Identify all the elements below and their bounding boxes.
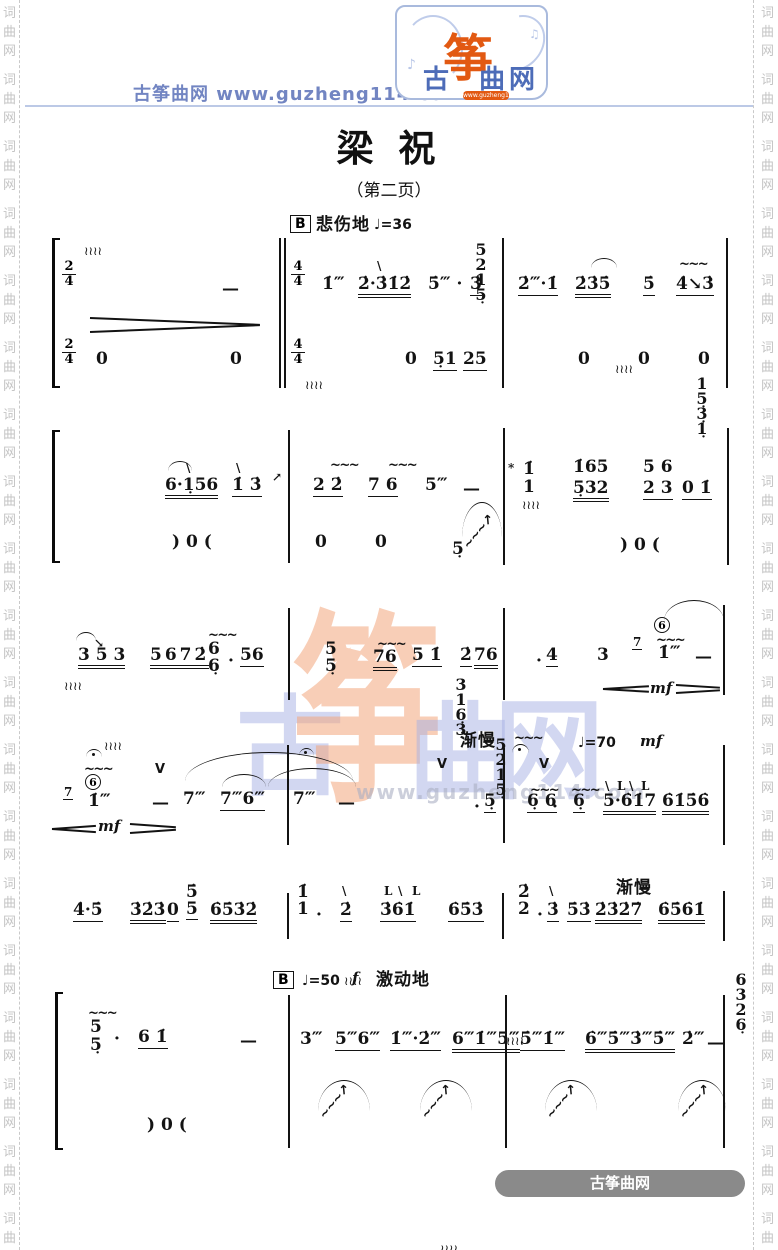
- wavy-ornament: ~~~: [330, 458, 358, 473]
- note-token: ·: [537, 906, 543, 925]
- rehearsal-mark: B: [273, 971, 294, 989]
- note-token: ) 0 (: [172, 533, 212, 552]
- edge-watermark-char: 曲: [3, 892, 16, 911]
- barline: [288, 995, 290, 1148]
- rehearsal-mark: B: [290, 215, 311, 233]
- note-token: 6̇5̇6̇1̇: [658, 901, 705, 924]
- note-token: 5̇3̇: [567, 901, 591, 922]
- note-token: ·: [114, 1030, 120, 1049]
- edge-watermark-char: 网: [3, 978, 16, 997]
- edge-watermark-char: 词: [3, 1141, 16, 1160]
- edge-watermark-char: 词: [3, 1074, 16, 1093]
- note-token: 1̇ 1: [297, 884, 309, 918]
- time-signature: 44: [289, 339, 307, 366]
- note-token: 2̇‴: [682, 1030, 705, 1049]
- edge-watermark-char: 曲: [3, 691, 16, 710]
- time-signature: 24: [60, 339, 78, 366]
- edge-watermark-char: 曲: [761, 1160, 774, 1179]
- note-token: 6 6̣: [208, 641, 220, 675]
- note-token: 6·1̣56: [165, 476, 218, 499]
- dynamic-marking: mf: [640, 733, 662, 749]
- note-token: 5̇‴1̇‴: [520, 1030, 565, 1051]
- edge-watermark-char: 网: [3, 40, 16, 59]
- note-token: 5 5̣: [325, 641, 337, 675]
- ritardando-label: 渐慢: [616, 879, 652, 897]
- barline: [287, 893, 289, 939]
- hairpin-line: [90, 324, 260, 332]
- edge-watermark-char: 曲: [3, 959, 16, 978]
- edge-watermark-char: 词: [3, 2, 16, 21]
- note-token: 5‴6‴: [335, 1030, 380, 1051]
- barline: [284, 238, 286, 388]
- edge-watermark-char: 网: [3, 1112, 16, 1131]
- edge-watermark-char: 网: [761, 40, 774, 59]
- dynamic-marking: mf: [650, 680, 672, 696]
- note-token: 6̇5̇3̇2̇: [210, 901, 257, 924]
- edge-watermark-char: 曲: [3, 1227, 16, 1246]
- edge-watermark-char: 词: [3, 940, 16, 959]
- note-token: 6̇‴5̇‴3̇‴5̇‴: [585, 1030, 675, 1053]
- edge-watermark-char: 网: [3, 1179, 16, 1198]
- edge-watermark-char: 词: [761, 605, 774, 624]
- note-token: —: [695, 648, 712, 667]
- edge-watermark-char: 网: [761, 308, 774, 327]
- note-token: 7‴: [183, 790, 206, 809]
- note-token: 0: [167, 901, 179, 922]
- edge-watermark-char: 曲: [761, 825, 774, 844]
- note-token: ·: [228, 652, 234, 671]
- barline: [288, 608, 290, 700]
- note-token: 76: [373, 648, 397, 671]
- note-token: 2 3: [643, 479, 673, 500]
- edge-watermark-char: 曲: [3, 21, 16, 40]
- edge-watermark-char: 曲: [3, 1026, 16, 1045]
- edge-watermark-char: 词: [761, 806, 774, 825]
- note-token: 1̇ 3̇: [232, 476, 262, 497]
- edge-watermark-char: 曲: [761, 88, 774, 107]
- edge-watermark-char: 词: [3, 672, 16, 691]
- edge-watermark-char: 网: [3, 509, 16, 528]
- note-token: 1̇‴: [88, 792, 111, 811]
- note-token: V: [437, 755, 447, 774]
- edge-watermark-char: 网: [761, 442, 774, 461]
- edge-watermark-char: 网: [3, 1246, 16, 1250]
- edge-watermark-char: 曲: [3, 222, 16, 241]
- edge-watermark-char: 曲: [3, 356, 16, 375]
- fermata-dot: [304, 751, 307, 754]
- note-token: \: [342, 882, 346, 901]
- note-token: 5672̇: [150, 646, 209, 669]
- edge-watermark-char: 曲: [761, 1093, 774, 1112]
- edge-watermark-char: 词: [761, 940, 774, 959]
- edge-watermark-char: 词: [3, 1208, 16, 1227]
- wavy-ornament: ~~~: [388, 458, 416, 473]
- barline: [723, 745, 725, 845]
- edge-watermark-char: 曲: [3, 423, 16, 442]
- edge-watermark-char: 词: [761, 2, 774, 21]
- edge-watermark-char: 词: [3, 337, 16, 356]
- system-bracket: [52, 430, 60, 563]
- note-token: 0: [375, 533, 387, 552]
- barline: [723, 995, 725, 1148]
- note-token: ·: [536, 652, 542, 671]
- note-token: 5̣1: [433, 350, 457, 371]
- edge-watermark-char: 网: [3, 442, 16, 461]
- note-token: 3 5 3: [78, 646, 125, 669]
- note-token: 3‴: [300, 1030, 323, 1049]
- barline: [505, 995, 507, 1148]
- edge-watermark-char: 曲: [3, 557, 16, 576]
- edge-watermark-char: 词: [3, 404, 16, 423]
- edge-watermark-char: 词: [761, 1141, 774, 1160]
- note-token: 25: [463, 350, 487, 371]
- edge-watermark-char: 网: [3, 375, 16, 394]
- edge-watermark-char: 曲: [3, 624, 16, 643]
- edge-watermark-char: 词: [3, 873, 16, 892]
- edge-watermark-char: 词: [761, 1208, 774, 1227]
- finger-number: 6: [85, 774, 101, 790]
- note-token: —: [707, 1034, 724, 1053]
- wavy-ornament: ~~~: [679, 257, 707, 272]
- edge-watermark-char: 网: [761, 844, 774, 863]
- edge-watermark-char: 网: [3, 844, 16, 863]
- note-token: 3̇6̇1̇: [380, 901, 416, 922]
- note-token: V: [539, 755, 549, 774]
- note-token: *: [508, 459, 514, 478]
- edge-watermark-char: 词: [3, 538, 16, 557]
- note-token: ·: [552, 798, 558, 817]
- ritardando-label: 渐慢: [460, 732, 496, 750]
- edge-watermark-char: 网: [761, 911, 774, 930]
- note-token: 7‴: [293, 790, 316, 809]
- barline: [279, 238, 281, 388]
- edge-watermark-char: 词: [3, 69, 16, 88]
- edge-watermark-char: 曲: [761, 624, 774, 643]
- note-token: L: [412, 882, 420, 901]
- edge-watermark-char: 词: [3, 1007, 16, 1026]
- note-token: 5·6̇1̇7: [603, 792, 656, 815]
- time-signature: 44: [289, 261, 307, 288]
- note-token: 6̇5̇3̇: [448, 901, 484, 922]
- note-token: \: [398, 882, 402, 901]
- edge-watermark-char: 网: [3, 643, 16, 662]
- note-token: 2̇: [460, 646, 472, 667]
- edge-watermark-char: 词: [3, 471, 16, 490]
- edge-watermark-char: 曲: [3, 490, 16, 509]
- note-token: 0: [578, 350, 590, 369]
- note-token: 2̇3̇5̇: [575, 275, 611, 298]
- note-token: 6 1̇: [138, 1028, 168, 1049]
- expression-label: 悲伤地: [316, 216, 370, 234]
- note-token: 6‴1̇‴5‴: [452, 1030, 520, 1053]
- note-token: 3̇: [470, 275, 482, 296]
- note-token: 5̣32: [573, 479, 609, 502]
- note-token: 0: [638, 350, 650, 369]
- edge-watermark-char: 网: [3, 576, 16, 595]
- note-token: 2̇‴·1̇: [518, 275, 558, 296]
- site-logo: ♪ ♫ www.guzheng114.com 古筝曲网: [395, 5, 548, 100]
- page-indicator: （第二页）: [0, 176, 778, 201]
- note-token: 7‴6‴: [220, 790, 265, 811]
- edge-watermark-char: 曲: [761, 222, 774, 241]
- edge-watermark-char: 网: [3, 1045, 16, 1064]
- barline: [502, 893, 504, 939]
- barline: [288, 430, 290, 563]
- barline: [723, 891, 725, 941]
- edge-watermark-char: 词: [3, 270, 16, 289]
- note-token: 0: [230, 350, 242, 369]
- note-token: 1̇65: [573, 458, 609, 477]
- edge-watermark-char: 词: [761, 337, 774, 356]
- note-token: —: [222, 280, 239, 299]
- barline: [723, 605, 725, 695]
- music-note-icon: ♪: [407, 57, 416, 73]
- note-token: —: [240, 1032, 257, 1051]
- edge-watermark-char: 网: [761, 1179, 774, 1198]
- barline: [503, 608, 505, 700]
- note-token: 2̇ 6 5 2: [623, 360, 778, 420]
- edge-watermark-char: 词: [761, 69, 774, 88]
- barline: [503, 428, 505, 565]
- note-token: 5̇‴ ·: [428, 275, 462, 294]
- edge-watermark-char: 词: [3, 806, 16, 825]
- barline: [502, 238, 504, 388]
- edge-watermark-char: 词: [761, 873, 774, 892]
- dynamic-marking: mf: [98, 818, 120, 834]
- logo-character: 曲: [479, 59, 505, 96]
- tempo-marking: ♩=36: [374, 217, 412, 233]
- hairpin-line: [130, 829, 176, 834]
- note-token: L: [384, 882, 392, 901]
- note-token: 6 3 2 6̣: [448, 1240, 778, 1250]
- note-token: 0 1̇: [682, 479, 712, 500]
- note-token: 7 6: [368, 476, 398, 497]
- edge-watermark-char: 词: [3, 605, 16, 624]
- note-token: 7: [63, 786, 73, 800]
- piece-title: 梁 祝: [0, 118, 778, 172]
- edge-watermark-char: 网: [761, 1112, 774, 1131]
- edge-watermark-char: 词: [761, 471, 774, 490]
- time-signature: 24: [60, 261, 78, 288]
- note-token: 5̇ 5: [186, 884, 198, 920]
- note-token: 0: [96, 350, 108, 369]
- edge-watermark-char: 网: [3, 241, 16, 260]
- note-token: 2̇: [340, 901, 352, 922]
- edge-watermark-char: 词: [761, 203, 774, 222]
- note-token: 4̇↘3̇: [676, 275, 714, 296]
- fermata-dot: [92, 753, 95, 756]
- edge-watermark-char: 曲: [761, 21, 774, 40]
- hairpin-line: [90, 317, 260, 325]
- edge-watermark-char: 曲: [3, 289, 16, 308]
- edge-watermark-char: 词: [3, 203, 16, 222]
- edge-watermark-char: 网: [3, 710, 16, 729]
- note-token: —: [338, 794, 355, 813]
- note-token: 56: [240, 646, 264, 667]
- note-token: 4̇·5̇: [73, 901, 103, 922]
- system-bracket: [55, 992, 63, 1150]
- note-token: 0: [698, 350, 710, 369]
- note-token: —: [463, 480, 480, 499]
- note-token: 2 2̇: [313, 476, 343, 497]
- expression-label: 激动地: [376, 971, 430, 989]
- note-token: 1̇‴: [322, 275, 345, 294]
- barline: [503, 748, 505, 843]
- note-token: 1̇‴: [658, 644, 681, 663]
- note-token: 1̇ 1: [523, 460, 535, 496]
- barline: [726, 238, 728, 388]
- edge-watermark-char: 曲: [761, 892, 774, 911]
- header-rule: [25, 105, 753, 107]
- note-token: 0: [315, 533, 327, 552]
- edge-watermark-char: 网: [3, 911, 16, 930]
- note-token: 5 6: [643, 458, 673, 477]
- note-token: ↗: [272, 468, 282, 487]
- note-token: V: [155, 760, 165, 779]
- tempo-marking: ♩=70: [578, 735, 616, 751]
- note-token: ·: [316, 906, 322, 925]
- note-token: 3̇2̇3̇: [130, 901, 166, 924]
- tempo-marking: ♩=50: [302, 973, 340, 989]
- note-token: 1̇‴·2̇‴: [390, 1030, 441, 1051]
- edge-watermark-char: 曲: [3, 1093, 16, 1112]
- note-token: \: [549, 882, 553, 901]
- edge-watermark-char: 网: [3, 777, 16, 796]
- edge-watermark-char: 网: [761, 643, 774, 662]
- note-token: 2̇ 2: [518, 884, 530, 918]
- note-token: 6̇1̇5̇6̇: [662, 792, 709, 815]
- edge-watermark-char: 曲: [3, 825, 16, 844]
- hairpin-line: [130, 823, 176, 828]
- fermata-dot: [518, 748, 521, 751]
- footer-banner: 古筝曲网 www.guzheng114.com: [495, 1170, 745, 1197]
- edge-watermark-char: 网: [3, 308, 16, 327]
- edge-watermark-char: 曲: [3, 88, 16, 107]
- note-token: ) 0 (: [620, 536, 660, 555]
- note-token: 5̇: [643, 275, 655, 296]
- note-token: 3̇: [547, 901, 559, 922]
- note-token: 3: [597, 646, 609, 665]
- note-token: 5‴: [425, 476, 448, 495]
- barline: [727, 428, 729, 565]
- note-token: ·: [474, 798, 480, 817]
- slur-arc: [664, 600, 724, 621]
- note-token: 5 5̣: [90, 1018, 102, 1054]
- note-token: 5̣: [484, 792, 496, 813]
- note-token: 5 1̇: [412, 646, 442, 667]
- music-note-icon: ♫: [529, 27, 540, 41]
- slur-arc: [76, 632, 96, 641]
- barline: [287, 745, 289, 845]
- note-token: 76: [474, 646, 498, 669]
- note-token: 2̇3̇2̇7̇: [595, 901, 642, 924]
- edge-watermark-char: 曲: [3, 1160, 16, 1179]
- note-token: ) 0 (: [147, 1116, 187, 1135]
- note-token: 7: [632, 636, 642, 650]
- note-token: 0: [405, 350, 417, 369]
- score-page: 古筝曲网www.guzheng114.com 词曲网词曲网词曲网词曲网词曲网词曲…: [0, 0, 778, 1250]
- edge-watermark-char: 网: [761, 576, 774, 595]
- note-token: —: [152, 794, 169, 813]
- note-token: 4: [546, 646, 558, 667]
- dynamic-marking: f: [352, 970, 358, 986]
- system-bracket: [52, 238, 60, 388]
- logo-character: 网: [509, 59, 535, 96]
- edge-watermark-char: 曲: [3, 758, 16, 777]
- note-token: 6̣: [573, 792, 585, 813]
- edge-watermark-char: 曲: [761, 557, 774, 576]
- edge-watermark-char: 词: [3, 739, 16, 758]
- note-token: 2̇·3̇1̇2̇: [358, 275, 411, 298]
